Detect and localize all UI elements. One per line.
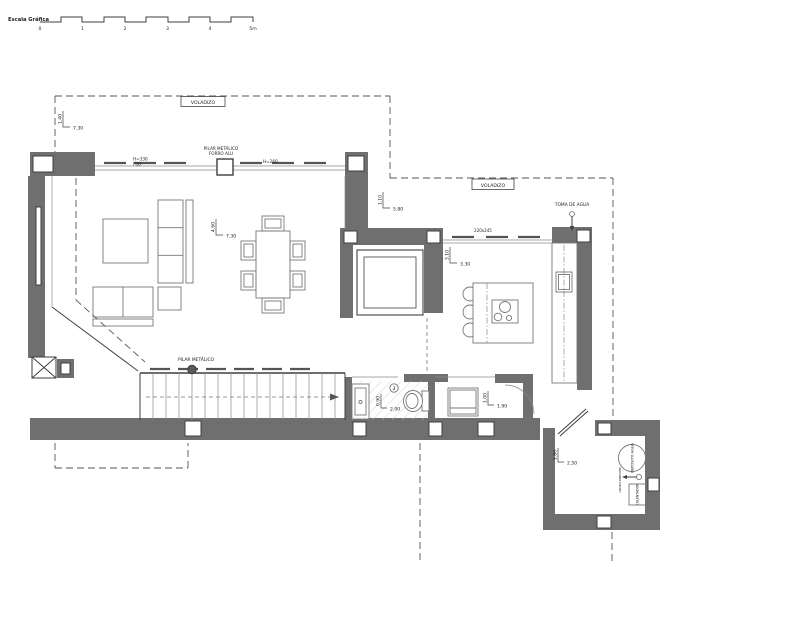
dim-utility: 1.80 2.50 [553,448,578,467]
pillar-inset [429,422,442,436]
pillar-inset [348,156,364,171]
atrium-wall-east [424,245,443,313]
west-window [36,207,41,285]
pillar-inset [33,156,53,172]
pump-valve [636,474,641,479]
stair-direction-arrow [330,394,339,401]
dim-laundry: 1.00 1.90 [483,391,508,410]
laundry-hall [448,385,534,416]
stair-treads [153,373,335,420]
north-pillar-label: FORRO ALU [209,151,233,156]
dining-table [256,231,290,298]
staircase: PILAR METÁLICO [140,356,345,420]
vanity-sink [352,384,369,419]
sofa-vertical [158,200,193,283]
stairs-pillar-dot [188,365,197,374]
utility-wall-east [645,420,660,530]
water-intake-label: TOMA DE AGUA [554,202,589,208]
utility-room: DEPÓSITO AGUA GRUPO PRESIÓN CALENTADOR [543,420,660,530]
scale-tick: 2 [124,26,127,32]
dim-overhang-left: 1.40 7.30 [58,111,84,132]
dining-chair-inner [265,219,281,228]
water-tank-label: DEPÓSITO AGUA [629,443,634,473]
pillar-inset [648,478,659,491]
scale-ticks: 0 1 2 3 4 5m [39,26,258,32]
pillar-inset [427,231,440,243]
kitchen-island [473,283,533,343]
dim-value-h: 2.50 [567,461,577,467]
sofa-horizontal [93,287,153,326]
hall-wall-east [523,383,533,423]
pillar-inset [185,421,201,436]
kitchen-window: 220x245 [443,228,552,243]
north-pillar [217,159,233,175]
pillar-inset [353,422,366,436]
water-intake: TOMA DE AGUA [554,202,589,231]
dining-chair-inner [293,244,302,257]
bath-door-lintel [404,374,448,382]
bathroom: 3 [352,381,429,420]
dim-value-h: 5.80 [393,207,403,213]
kitchen-counter [552,243,577,383]
pillar-inset [597,516,611,528]
hall-wall-north [495,374,533,383]
wall-east [577,243,592,390]
utility-wall-west [543,428,555,516]
washer-inner [450,390,476,414]
entry-door [558,409,588,436]
dim-value-v: 0.90 [376,396,382,406]
pillar-inset [598,423,611,434]
north-glazing: PILAR METÁLICO FORRO ALU H=330 FIJO H=26… [95,146,345,175]
scale-zigzag [40,17,253,22]
dim-value-h: 7.30 [226,234,236,240]
dining-set [241,216,305,313]
dim-value-v: 3.10 [445,250,451,260]
atrium-wall-west [340,245,353,318]
voladizo-label-left: VOLADIZO [191,100,216,106]
dim-value-h: 1.90 [497,404,507,410]
floor-plan-canvas: Escala Gráfica 0 1 2 3 4 5m VOLADIZO VOL… [0,0,800,640]
dim-value-h: 7.30 [73,126,83,132]
scale-tick: 4 [209,26,212,32]
dining-chair-inner [265,301,281,310]
toilet [404,391,430,412]
pillar-inset [344,231,357,243]
stair-side-edges [140,373,345,420]
room-number: 3 [393,386,396,392]
kitchen-window-lines [443,240,552,243]
sofa-backrest [186,200,193,283]
dim-value-h: 3.30 [460,262,470,268]
southwest-corner [32,357,74,378]
sofa-seat [158,200,183,283]
dim-kitchen: 3.10 3.30 [445,247,471,268]
skylight-void-outer [357,250,423,315]
kitchen [463,243,577,383]
overhang-bottom-left [55,443,188,468]
washer [448,388,478,416]
pump-symbol [622,474,642,479]
overhang-chamfer-dash [76,178,145,362]
coffee-table [103,219,148,263]
scale-bar: Escala Gráfica 0 1 2 3 4 5m [8,16,257,32]
water-intake-symbol [570,212,575,217]
atrium-shaft [340,228,443,318]
floor-plan-page: Escala Gráfica 0 1 2 3 4 5m VOLADIZO VOL… [0,0,800,640]
pillar-inset [478,422,494,436]
living-room [93,200,305,326]
side-table [158,287,181,310]
dim-overhang-right: 1.10 5.80 [378,192,404,213]
dim-value-h: 2.00 [390,407,400,413]
glazing-height-right-label: H=260 [263,159,278,164]
pump-label: GRUPO PRESIÓN [617,468,622,493]
dim-value-v: 1.10 [378,195,384,205]
scale-tick: 5m [249,26,257,32]
dining-chair-inner [244,244,253,257]
boiler-label: CALENTADOR [636,483,640,505]
voladizo-label-right: VOLADIZO [481,183,506,189]
kitchen-window-size-label: 220x245 [474,228,492,233]
scale-tick: 0 [39,26,42,32]
dining-chair-inner [293,274,302,287]
toilet-tank [422,391,429,411]
wall-south [30,418,540,440]
stairs-pillar-label: PILAR METÁLICO [178,356,215,363]
bath-wall-west [345,377,352,421]
entry-door-leaf [558,409,588,436]
sofa-cushion-lines [158,228,183,256]
pump-arrow [622,475,627,479]
scale-tick: 3 [166,26,169,32]
dim-value-v: 1.00 [483,393,489,403]
dim-value-v: 1.80 [553,450,559,460]
dim-value-v: 1.40 [58,114,64,124]
pillar-inset [61,363,70,374]
glazing-height-label: FIJO [133,162,142,167]
dining-chair-inner [244,274,253,287]
vanity-counter [352,384,369,419]
pillar-inset [577,230,590,242]
dim-living: 4.60 7.30 [211,219,237,240]
scale-tick: 1 [81,26,84,32]
sofa-backrest [93,319,153,326]
dim-value-v: 4.60 [211,222,217,232]
